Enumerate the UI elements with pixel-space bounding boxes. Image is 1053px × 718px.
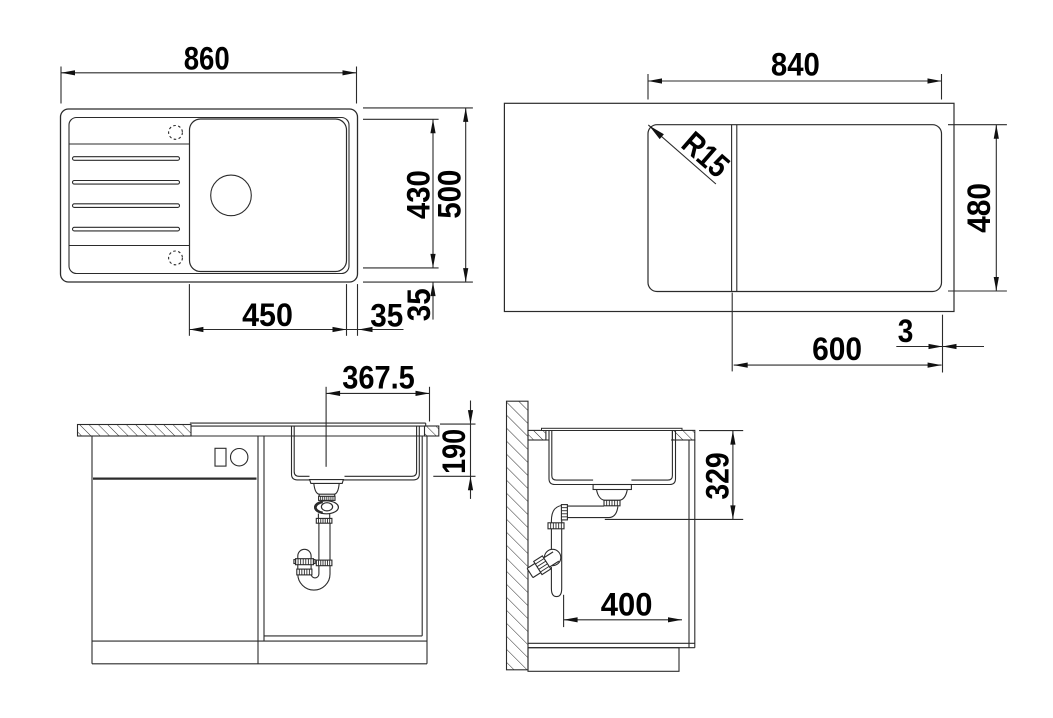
svg-text:480: 480 [961, 183, 997, 233]
svg-text:35: 35 [370, 298, 403, 334]
svg-text:840: 840 [771, 47, 820, 83]
svg-text:500: 500 [432, 170, 468, 219]
svg-text:35: 35 [401, 288, 437, 321]
svg-text:3: 3 [898, 313, 914, 349]
svg-text:190: 190 [436, 429, 472, 474]
svg-text:450: 450 [242, 297, 293, 333]
svg-text:400: 400 [601, 586, 653, 622]
svg-text:600: 600 [812, 331, 862, 367]
svg-text:329: 329 [700, 452, 736, 499]
svg-text:860: 860 [184, 40, 230, 76]
svg-text:367.5: 367.5 [342, 360, 415, 396]
